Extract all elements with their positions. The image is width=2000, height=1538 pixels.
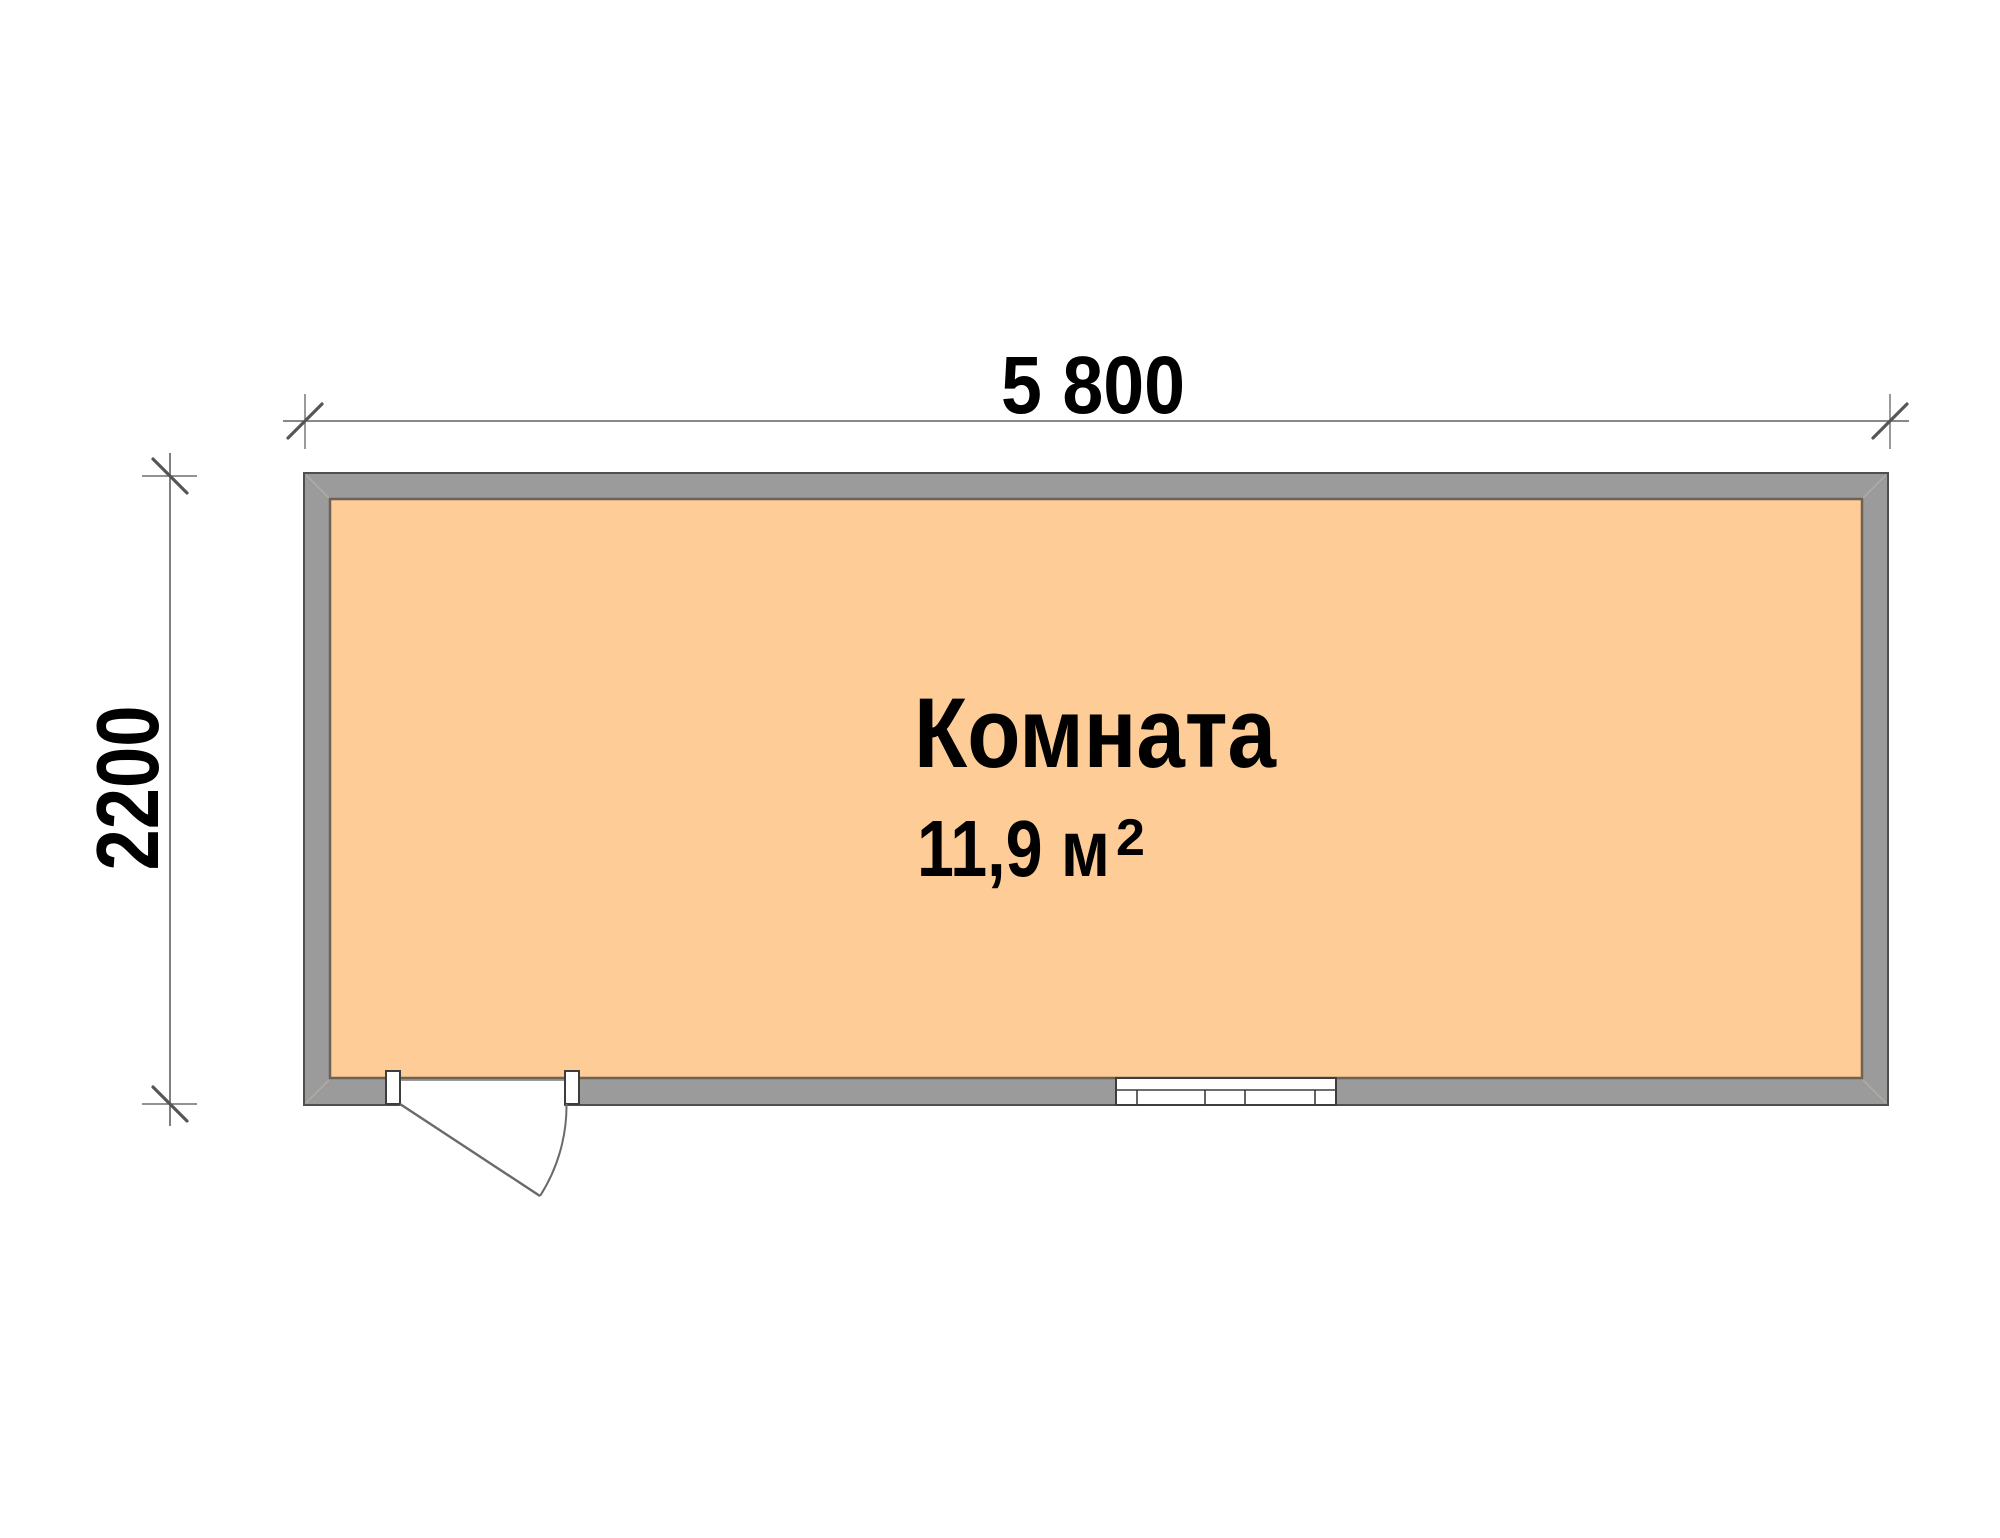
floor-plan-canvas: 5 800 2200 Комната 11,9 м2 (0, 0, 2000, 1538)
dimension-width: 5 800 (283, 340, 1909, 449)
floor-plan: 5 800 2200 Комната 11,9 м2 (0, 0, 2000, 1538)
door-swing-arc-icon (540, 1104, 567, 1196)
door-opening (401, 1081, 564, 1110)
walls-group (304, 473, 1888, 1105)
dimension-height: 2200 (78, 453, 197, 1126)
door-symbol (386, 1071, 579, 1196)
door-jamb-left (386, 1071, 400, 1104)
dimension-height-label: 2200 (78, 706, 177, 871)
door-leaf (400, 1104, 540, 1196)
window-frame-icon (1116, 1078, 1336, 1105)
dimension-width-label: 5 800 (1001, 340, 1185, 431)
room-area-superscript: 2 (1116, 809, 1145, 867)
room-name-label: Комната (914, 677, 1277, 788)
door-jamb-right (565, 1071, 579, 1104)
room-area-value: 11,9 м (917, 804, 1110, 893)
window-symbol (1116, 1078, 1336, 1105)
room-floor (330, 499, 1862, 1078)
